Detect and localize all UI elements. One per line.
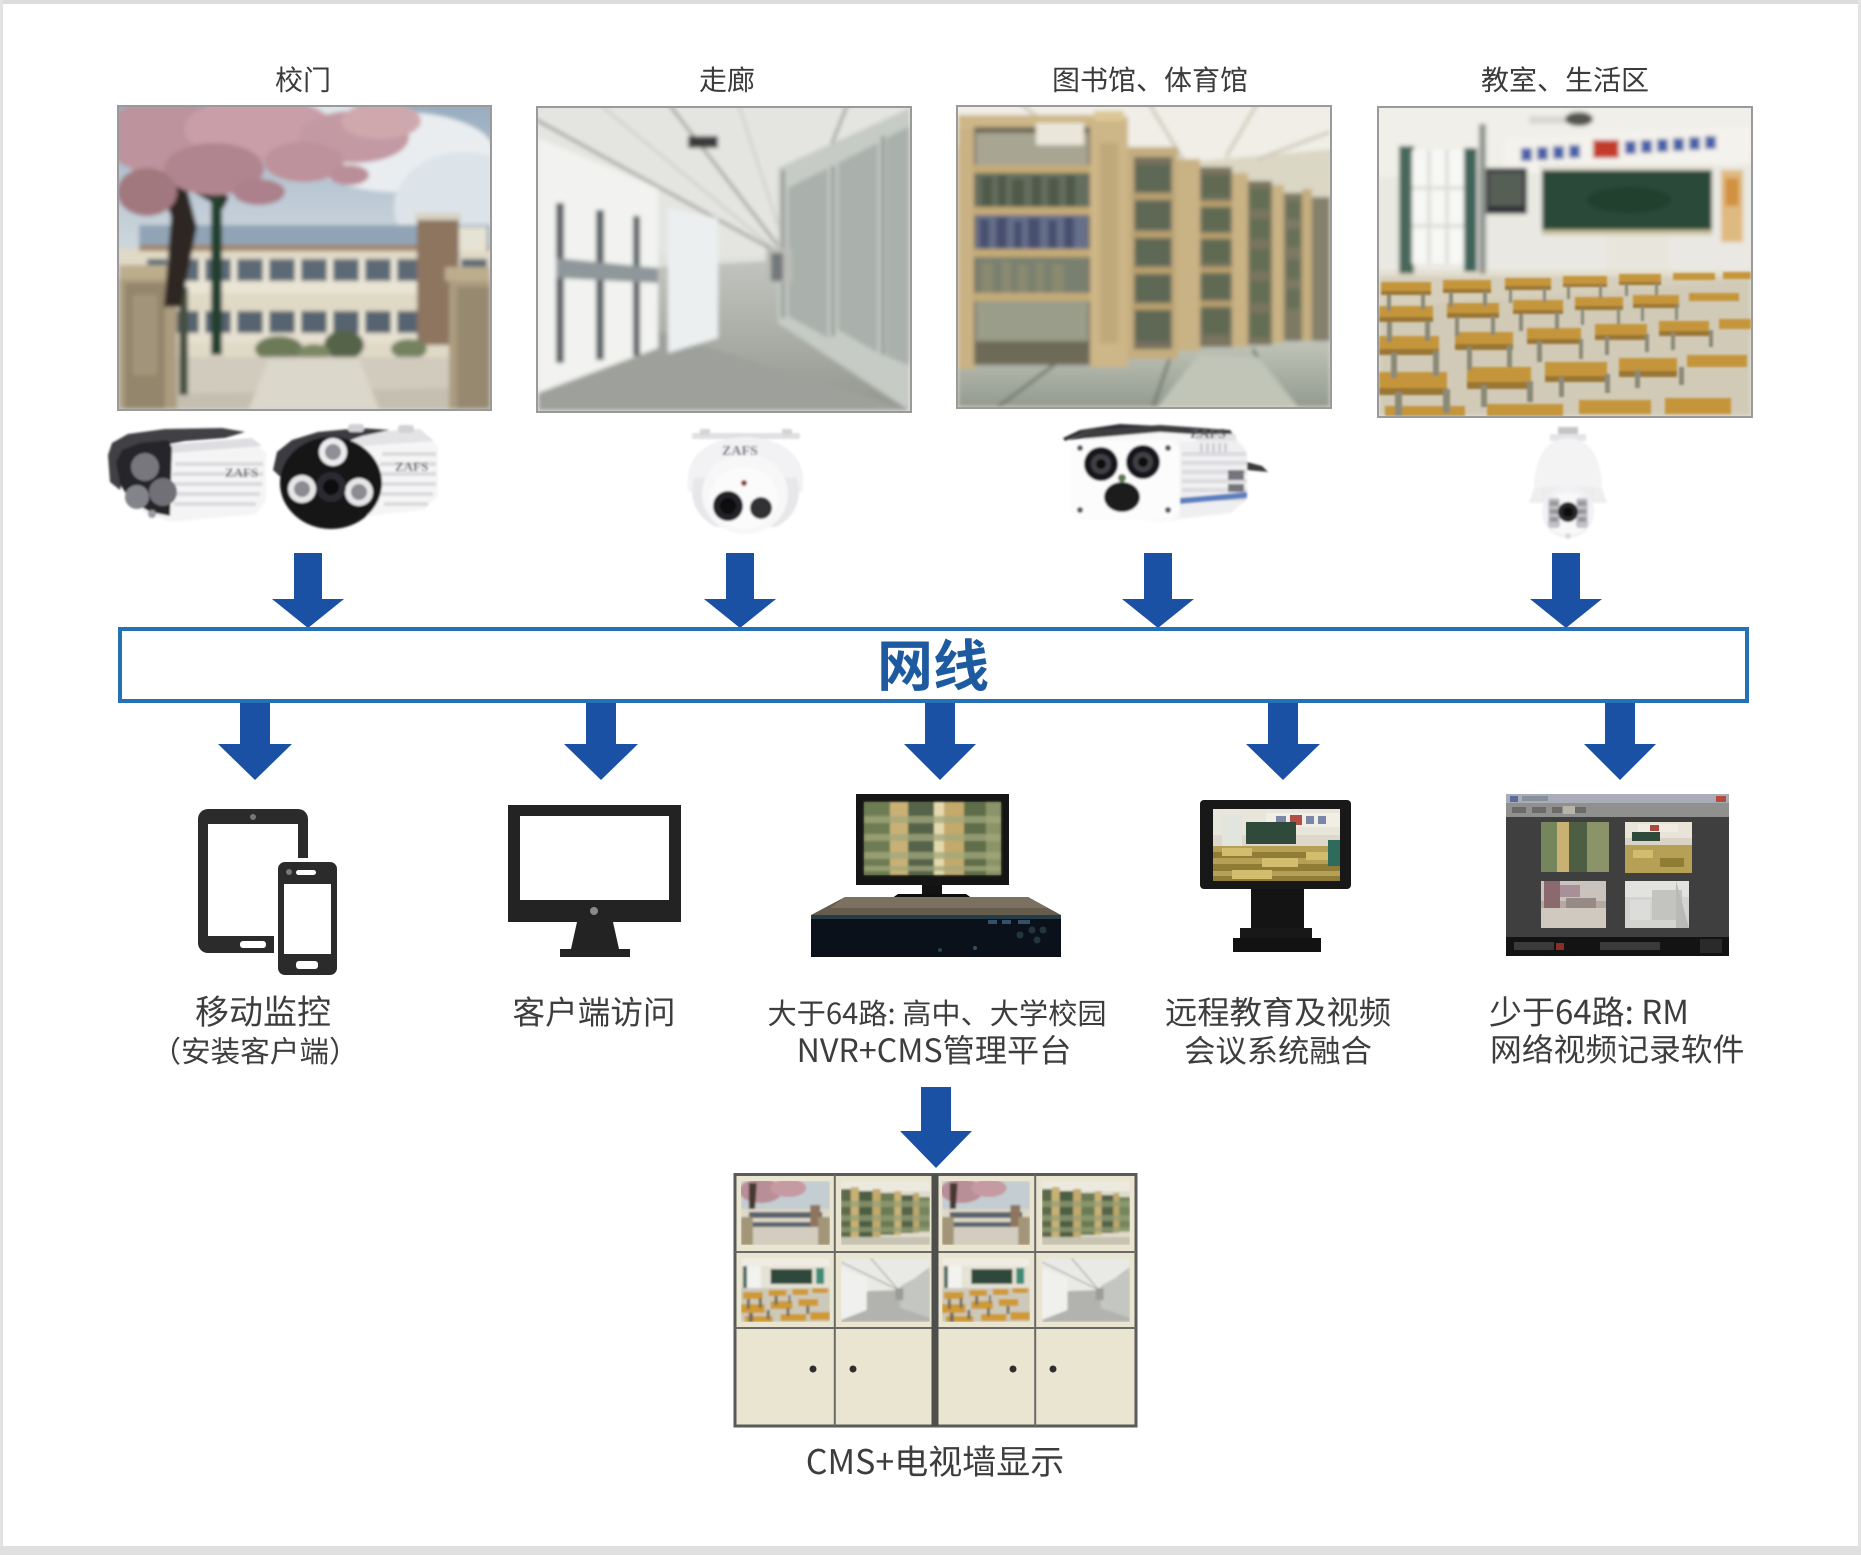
svg-text:ZAFS: ZAFS bbox=[722, 444, 758, 459]
svg-text:ZAFS: ZAFS bbox=[395, 459, 428, 474]
svg-text:ZAFS: ZAFS bbox=[1190, 427, 1226, 442]
svg-text:ZAFS: ZAFS bbox=[225, 465, 258, 480]
